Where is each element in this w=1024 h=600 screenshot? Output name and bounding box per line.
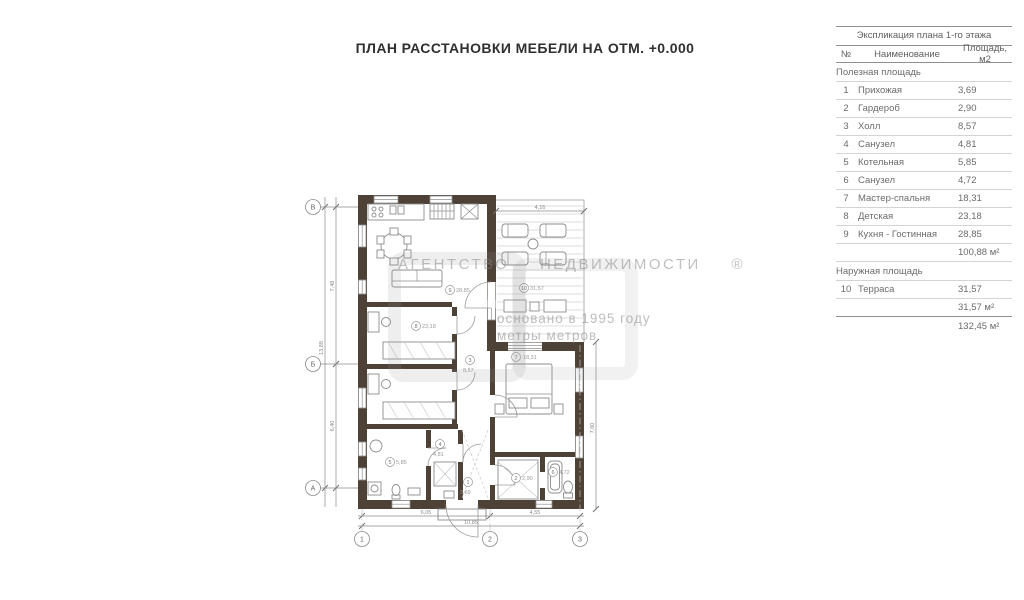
room-number: 9 [448, 288, 451, 294]
room-number: 10 [521, 286, 527, 292]
dim-label: 13,88 [319, 341, 325, 355]
row-name: Прихожая [856, 85, 958, 96]
column-header-name: Наименование [856, 49, 958, 60]
row-number: 7 [836, 193, 856, 204]
row-name: Котельная [856, 157, 958, 168]
table-header: № Наименование Площадь, м2 [836, 46, 1012, 63]
table-body: Полезная площадь1Прихожая3,692Гардероб2,… [836, 63, 1012, 317]
dim-label: 7,48 [330, 281, 336, 292]
room-area: 28,85 [456, 288, 470, 294]
row-name: Детская [856, 211, 958, 222]
axis-label: 3 [578, 537, 582, 544]
room-area: 4,81 [433, 452, 444, 458]
axis-label: Б [311, 362, 316, 369]
table-row: 7Мастер-спальня18,31 [836, 190, 1012, 208]
dim-label: 4,55 [530, 510, 541, 516]
axis-label: А [311, 486, 316, 493]
table-row: 6Санузел4,72 [836, 172, 1012, 190]
axis-label: 2 [488, 537, 492, 544]
row-name: Холл [856, 121, 958, 132]
dim-label: 7,60 [590, 423, 596, 434]
total-area-value: 132,45 м² [958, 321, 999, 332]
row-number: 4 [836, 139, 856, 150]
row-name: Санузел [856, 175, 958, 186]
table-row: 3Холл8,57 [836, 118, 1012, 136]
row-area: 3,69 [958, 85, 1012, 96]
room-number: 5 [388, 460, 391, 466]
table-row: 10Терраса31,57 [836, 281, 1012, 299]
room-area: 31,57 [530, 286, 544, 292]
row-area: 2,90 [958, 103, 1012, 114]
subtotal-area-value: 100,88 м² [958, 247, 999, 258]
row-number: 8 [836, 211, 856, 222]
row-name: Терраса [856, 284, 958, 295]
row-area: 4,81 [958, 139, 1012, 150]
table-row: 1Прихожая3,69 [836, 82, 1012, 100]
room-number: 6 [551, 470, 554, 476]
axis-label: 1 [360, 537, 364, 544]
room-number: 4 [438, 442, 441, 448]
row-number: 9 [836, 229, 856, 240]
room-area: 4,72 [559, 470, 570, 476]
row-area: 23,18 [958, 211, 1012, 222]
table-section-label: Полезная площадь [836, 63, 1012, 82]
row-number: 3 [836, 121, 856, 132]
subtotal-area-value: 31,57 м² [958, 302, 994, 313]
room-area: 23,18 [422, 324, 436, 330]
row-number: 1 [836, 85, 856, 96]
table-row: 5Котельная5,85 [836, 154, 1012, 172]
row-area: 28,85 [958, 229, 1012, 240]
column-header-area: Площадь, м2 [958, 43, 1012, 65]
table-row: 2Гардероб2,90 [836, 100, 1012, 118]
table-section-label: Наружная площадь [836, 262, 1012, 281]
section-subtotal: 100,88 м² [836, 244, 1012, 262]
row-number: 6 [836, 175, 856, 186]
room-area: 8,57 [463, 368, 474, 374]
room-number: 3 [468, 358, 471, 364]
row-name: Гардероб [856, 103, 958, 114]
canvas: 6,05 4,55 10,85 7,48 6,40 13,88 4,16 7,6… [0, 0, 1024, 600]
room-number: 2 [514, 476, 517, 482]
room-area: 18,31 [523, 355, 537, 361]
room-number: 1 [466, 480, 469, 486]
dim-label: 4,16 [535, 205, 546, 211]
row-area: 18,31 [958, 193, 1012, 204]
dim-label: 10,85 [464, 520, 478, 526]
room-area: 5,85 [396, 460, 407, 466]
row-area: 4,72 [958, 175, 1012, 186]
column-header-num: № [836, 49, 856, 60]
table-row: 4Санузел4,81 [836, 136, 1012, 154]
dim-label: 6,40 [330, 421, 336, 432]
row-number: 5 [836, 157, 856, 168]
row-area: 31,57 [958, 284, 1012, 295]
row-name: Мастер-спальня [856, 193, 958, 204]
explication-table: Экспликация плана 1-го этажа № Наименова… [836, 26, 1012, 335]
table-row: 9Кухня - Гостинная28,85 [836, 226, 1012, 244]
row-name: Кухня - Гостинная [856, 229, 958, 240]
row-area: 5,85 [958, 157, 1012, 168]
row-number: 2 [836, 103, 856, 114]
row-name: Санузел [856, 139, 958, 150]
page-title: ПЛАН РАССТАНОВКИ МЕБЕЛИ НА ОТМ. +0.000 [330, 40, 720, 56]
room-area: 2,90 [522, 476, 533, 482]
room-number: 8 [414, 324, 417, 330]
table-total-row: 132,45 м² [836, 316, 1012, 335]
terrace-deck [496, 200, 584, 342]
row-number: 10 [836, 284, 856, 295]
row-area: 8,57 [958, 121, 1012, 132]
axis-label: В [311, 205, 316, 212]
section-subtotal: 31,57 м² [836, 299, 1012, 317]
table-row: 8Детская23,18 [836, 208, 1012, 226]
room-area: 3,69 [460, 490, 471, 496]
dim-label: 6,05 [421, 510, 432, 516]
room-number: 7 [514, 355, 517, 361]
